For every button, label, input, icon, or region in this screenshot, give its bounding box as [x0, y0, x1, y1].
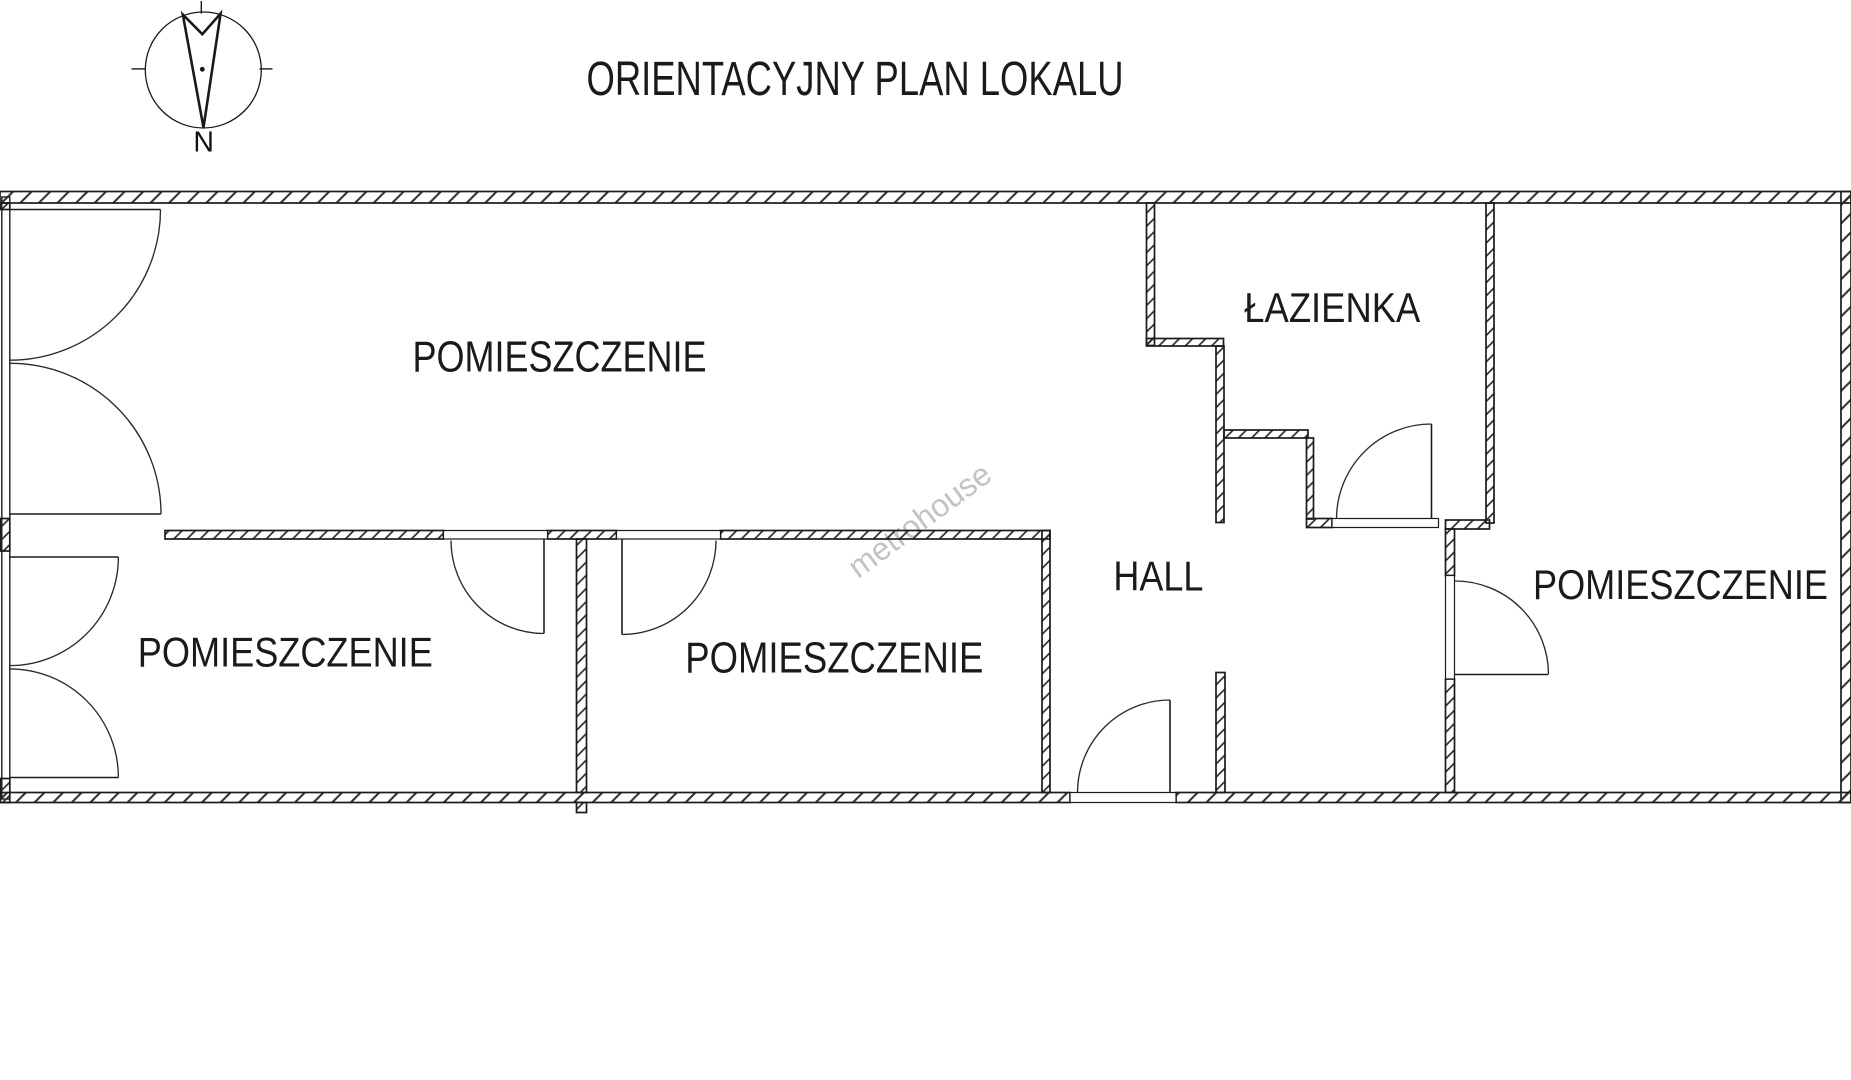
svg-text:N: N	[193, 127, 214, 159]
svg-text:POMIESZCZENIE: POMIESZCZENIE	[1533, 561, 1828, 608]
svg-text:POMIESZCZENIE: POMIESZCZENIE	[138, 629, 433, 676]
svg-text:POMIESZCZENIE: POMIESZCZENIE	[685, 634, 983, 683]
svg-text:POMIESZCZENIE: POMIESZCZENIE	[413, 333, 707, 382]
svg-text:ORIENTACYJNY PLAN LOKALU: ORIENTACYJNY PLAN LOKALU	[587, 52, 1124, 106]
svg-text:ŁAZIENKA: ŁAZIENKA	[1244, 284, 1420, 331]
svg-text:HALL: HALL	[1113, 553, 1203, 600]
